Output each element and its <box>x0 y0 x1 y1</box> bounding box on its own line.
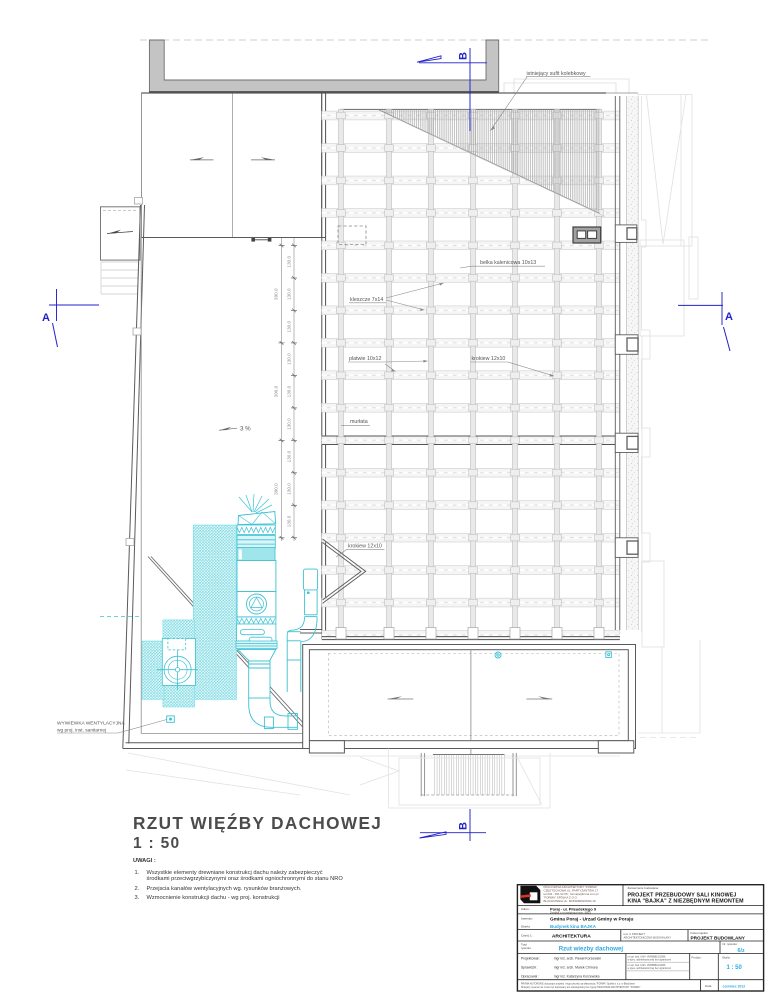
svg-text:mgr inż. arch. Paweł Korzewski: mgr inż. arch. Paweł Korzewski <box>554 957 601 961</box>
svg-text:ARCHITEKTURA: ARCHITEKTURA <box>552 934 591 940</box>
svg-text:3 %: 3 % <box>240 426 251 433</box>
svg-text:Przejscia kanałów wentylacyjny: Przejscia kanałów wentylacyjnych wg. rys… <box>147 886 302 892</box>
svg-text:Adres:: Adres: <box>521 907 530 911</box>
svg-text:Budynek kina BAJKA: Budynek kina BAJKA <box>550 924 597 929</box>
svg-text:1.: 1. <box>135 870 140 876</box>
svg-text:130.0: 130.0 <box>287 256 292 268</box>
svg-text:Projektował :: Projektował : <box>521 957 540 961</box>
svg-text:130.0: 130.0 <box>287 515 292 527</box>
svg-text:Inwestor:: Inwestor: <box>521 917 533 921</box>
svg-text:A: A <box>725 311 733 323</box>
svg-text:Gmina Poraj - Urzad Gminy w Po: Gmina Poraj - Urzad Gminy w Poraju <box>550 916 634 922</box>
svg-text:130.0: 130.0 <box>287 385 292 397</box>
svg-text:w spec. architektonicznej bez: w spec. architektonicznej bez ograniczeń <box>628 967 672 970</box>
svg-text:Wszystkie elementy drewniane k: Wszystkie elementy drewniane konstrukcj … <box>147 870 323 876</box>
svg-text:6/z: 6/z <box>738 948 745 954</box>
svg-text:B: B <box>458 52 470 60</box>
svg-text:130.0: 130.0 <box>287 321 292 333</box>
svg-text:Data:: Data: <box>705 984 712 988</box>
svg-text:Skala:: Skala: <box>722 956 731 960</box>
svg-text:390.0: 390.0 <box>274 288 279 300</box>
svg-text:kleszcze 7x14: kleszcze 7x14 <box>350 297 383 303</box>
svg-text:czerwiec 2012: czerwiec 2012 <box>723 984 746 988</box>
svg-text:krokiew 12x10: krokiew 12x10 <box>348 543 382 549</box>
svg-text:środkami przeciwgrzybiczynymi: środkami przeciwgrzybiczynymi oraz środk… <box>147 876 344 882</box>
svg-text:murłata: murłata <box>350 419 368 425</box>
svg-text:wg proj. inst. sanitarnej: wg proj. inst. sanitarnej <box>57 728 106 734</box>
svg-text:Rzut wiezby dachowej: Rzut wiezby dachowej <box>559 946 624 953</box>
svg-text:1 : 50: 1 : 50 <box>133 835 180 852</box>
svg-text:KINA "BAJKA" Z NIEZBĘDNYM REMO: KINA "BAJKA" Z NIEZBĘDNYM REMONTEM <box>628 898 745 904</box>
svg-text:ARCHITEKTONICZNO-BUDOWLANY: ARCHITEKTONICZNO-BUDOWLANY <box>624 935 672 939</box>
svg-text:UWAGI :: UWAGI : <box>133 858 156 864</box>
svg-text:130.0: 130.0 <box>287 450 292 462</box>
svg-text:Faza projektu:: Faza projektu: <box>691 931 709 935</box>
svg-text:3.: 3. <box>135 895 140 901</box>
svg-text:platwie 10x12: platwie 10x12 <box>349 356 381 362</box>
svg-text:mgr inż. Katarzyna Korzewska: mgr inż. Katarzyna Korzewska <box>554 975 600 979</box>
svg-text:Obiekt:: Obiekt: <box>521 924 531 928</box>
svg-text:A: A <box>42 312 50 324</box>
svg-text:Nr. rysunku:: Nr. rysunku: <box>723 942 738 946</box>
svg-text:Niniejszy rysunek nie może być: Niniejszy rysunek nie może być kopiowany… <box>521 986 641 989</box>
svg-text:Działka o nr ewidencyjnym: 98: Działka o nr ewidencyjnym: 9801 <box>550 910 591 914</box>
svg-text:B: B <box>458 822 470 830</box>
svg-text:130.0: 130.0 <box>287 483 292 495</box>
svg-text:BLACHOWNIA UL. MODRZEWIOWA 19: BLACHOWNIA UL. MODRZEWIOWA 19 <box>544 899 596 903</box>
svg-text:1 : 50: 1 : 50 <box>727 965 743 971</box>
svg-text:mgr inż. arch. Marek Chmura: mgr inż. arch. Marek Chmura <box>554 966 598 970</box>
svg-text:Wzmocnienie konstrukcji dachu: Wzmocnienie konstrukcji dachu - wg proj.… <box>147 895 280 901</box>
svg-text:RZUT WIĘŹBY DACHOWEJ: RZUT WIĘŹBY DACHOWEJ <box>133 813 382 833</box>
svg-text:130.0: 130.0 <box>287 288 292 300</box>
svg-text:390.0: 390.0 <box>274 483 279 495</box>
svg-text:WYWIEWKA WENTYLACYJNA: WYWIEWKA WENTYLACYJNA <box>57 721 125 727</box>
svg-text:130.0: 130.0 <box>287 353 292 365</box>
svg-text:Opracował :: Opracował : <box>521 975 539 979</box>
svg-text:belka kalenicowa 10x13: belka kalenicowa 10x13 <box>480 260 536 266</box>
svg-text:390.0: 390.0 <box>274 385 279 397</box>
svg-text:PRAWA AUTORSKIE dotyczące pr: PRAWA AUTORSKIE dotyczące projektu i teg… <box>521 982 635 985</box>
svg-text:Część 1:: Część 1: <box>521 934 533 938</box>
svg-text:istniejący sufit kolebkowy: istniejący sufit kolebkowy <box>527 71 587 77</box>
svg-text:Sprawdził :: Sprawdził : <box>521 966 538 970</box>
svg-text:w spec. architektonicznej bez: w spec. architektonicznej bez ograniczeń <box>628 959 672 962</box>
svg-text:Zamierzenie budowlane:: Zamierzenie budowlane: <box>628 886 660 890</box>
svg-text:130.0: 130.0 <box>287 418 292 430</box>
svg-text:Podpis:: Podpis: <box>691 956 701 960</box>
svg-text:2.: 2. <box>135 886 140 892</box>
svg-text:rysunku:: rysunku: <box>521 946 532 950</box>
svg-text:krokiew 12x10: krokiew 12x10 <box>472 356 506 362</box>
svg-text:PROJEKT BUDOWLANY: PROJEKT BUDOWLANY <box>691 936 746 941</box>
